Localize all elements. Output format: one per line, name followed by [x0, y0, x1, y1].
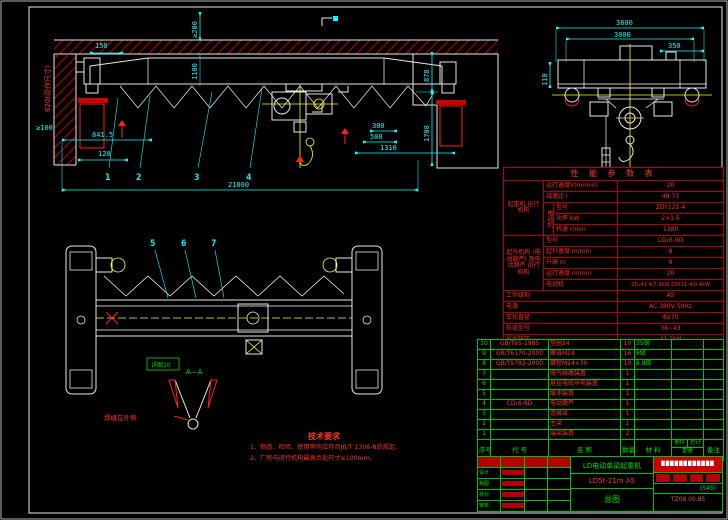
- end-view-dimensions: 3600 3000 350 110: [541, 19, 704, 88]
- balloon-1: 1: [105, 173, 110, 183]
- balloon-4: 4: [246, 173, 252, 183]
- festoon-wire: [120, 86, 434, 108]
- dim-500: 500: [370, 133, 383, 141]
- right-drive-motor: [336, 258, 352, 272]
- dim-350: 350: [668, 42, 681, 50]
- ceiling-hatch: [54, 40, 498, 54]
- balloon-2: 2: [136, 173, 141, 183]
- right-wheel: [442, 84, 454, 93]
- performance-parameter-table: 性 能 参 数 表 起重机 运行机构 运行速度V(m/min) 20 减速比 i…: [503, 167, 724, 346]
- left-wall-hatch: [54, 54, 76, 165]
- dim-3000: 3000: [614, 31, 631, 39]
- dim-8415: 841.5: [92, 131, 113, 139]
- hook: [300, 146, 313, 166]
- left-end-carriage: [66, 246, 96, 394]
- balloon-6: 6: [181, 239, 186, 249]
- left-rail-support: [78, 98, 126, 148]
- title-block: 设计 制图 校对 审核 LD电动单梁起重机 LD5t-21m A5 总图 ███…: [477, 456, 723, 512]
- cad-drawing-sheet: 150 ≥200 1100 620(动作尺寸) ≥100 841.5 120 2…: [0, 0, 728, 520]
- dim-620: 620(动作尺寸): [43, 65, 52, 112]
- weld-note: 焊缝在外侧: [104, 413, 137, 422]
- hoist-front: [262, 84, 338, 168]
- hook-pulley: [306, 138, 314, 146]
- stamp-bar: [654, 473, 722, 484]
- conductor-bracket: [666, 52, 676, 60]
- dim-3600: 3600: [616, 19, 633, 27]
- motor-group: 电动机: [544, 203, 554, 236]
- balloon-5: 5: [150, 239, 155, 249]
- product-model: LD5t-21m A5: [571, 474, 653, 489]
- notes-title: 技术要求: [308, 431, 468, 442]
- weld-detail: 详图10 A—A 焊缝在外侧: [104, 358, 217, 429]
- detail-box-label: 详图10: [151, 361, 171, 369]
- company-banner: ████████████: [654, 457, 722, 473]
- group-hoist: 起升机构 (电动葫芦) 及电动葫芦 运行机构: [504, 236, 544, 291]
- dim-110: 110: [541, 73, 549, 86]
- dim-1708: 1708: [423, 125, 431, 142]
- section-cut-marks: [312, 16, 348, 112]
- hoist-end: [590, 88, 672, 170]
- left-drive-motor: [96, 258, 112, 272]
- quantity-mark: (545): [654, 484, 722, 494]
- dim-ge200: ≥200: [191, 21, 199, 38]
- right-rail-support: [341, 100, 466, 146]
- dim-120: 120: [98, 150, 111, 158]
- plan-view: 5 6 7 详图10 A—A 焊缝在外侧: [66, 239, 382, 429]
- left-buffer: [76, 62, 84, 72]
- technical-notes: 技术要求 1、制造、检验、使用等均应符合JB/T 1306-8的规定。 2、厂房…: [250, 431, 468, 464]
- front-view: 150 ≥200 1100 620(动作尺寸) ≥100 841.5 120 2…: [36, 12, 498, 192]
- dim-1310: 1310: [380, 144, 397, 152]
- dim-ge100: ≥100: [36, 124, 53, 132]
- left-wheel: [86, 84, 98, 93]
- section-label: A—A: [186, 368, 203, 376]
- bom-table: 10GB/T95-1985垫圈241035钢 9GB/T6170-2000螺母M…: [477, 339, 724, 461]
- dim-1100: 1100: [191, 63, 199, 80]
- dim-300: 300: [372, 122, 385, 130]
- sheet-type: 总图: [571, 489, 653, 511]
- left-end-truck: [84, 58, 100, 84]
- right-end-carriage: [352, 246, 382, 394]
- note-item-2: 2、厂房与运行机构最高点处尺寸≥100mm。: [250, 453, 468, 464]
- balloon-7: 7: [211, 239, 216, 249]
- product-title: LD电动单梁起重机: [571, 457, 653, 474]
- balloon-3: 3: [194, 173, 199, 183]
- signature-grid: 设计 制图 校对 审核: [478, 457, 571, 511]
- revision-band: [478, 457, 570, 468]
- note-item-1: 1、制造、检验、使用等均应符合JB/T 1306-8的规定。: [250, 442, 468, 453]
- hoist-plan: [238, 304, 268, 354]
- festoon-plan: [104, 276, 344, 296]
- ground-mark: [296, 155, 304, 162]
- hook: [619, 144, 633, 161]
- main-girder: [76, 58, 456, 93]
- param-table-title: 性 能 参 数 表: [504, 168, 724, 181]
- group-travel: 起重机 运行机构: [504, 181, 544, 236]
- top-stop-block: [620, 46, 652, 60]
- dim-878: 878: [423, 69, 431, 82]
- dim-150: 150: [95, 42, 108, 50]
- document-number: TZ08 00.85: [654, 494, 722, 511]
- end-view: 3600 3000 350 110: [541, 19, 712, 172]
